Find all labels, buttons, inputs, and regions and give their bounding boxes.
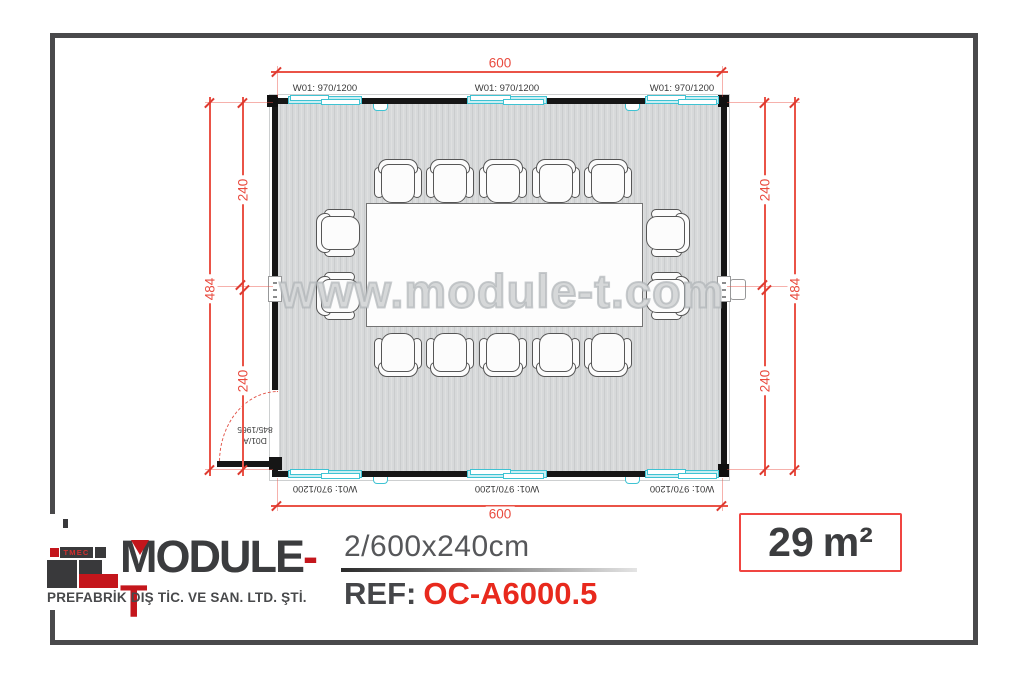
- door-size: 845/1965: [224, 424, 286, 435]
- window-label: W01: 970/1200: [622, 83, 742, 94]
- dim-left-half-top: 240: [236, 176, 251, 205]
- reference-line: REF:OC-A6000.5: [344, 576, 597, 612]
- company-logo: TMEC MODULE-T PREFABRİK DIŞ TİC. VE SAN.…: [42, 514, 338, 610]
- dim-width-top: 600: [486, 56, 515, 71]
- window-pane: [321, 99, 359, 105]
- module-joint-plate: [730, 279, 746, 300]
- brand-m-triangle: [131, 540, 149, 555]
- window-top-2: [467, 96, 547, 104]
- brand-name: MODULE-T: [120, 534, 338, 624]
- company-subtitle: PREFABRİK DIŞ TİC. VE SAN. LTD. ŞTİ.: [47, 590, 307, 605]
- window-pane: [503, 99, 544, 105]
- logo-block-red: [50, 548, 59, 557]
- logo-tick: [63, 519, 68, 528]
- dim-line-top: [271, 71, 728, 73]
- divider-rule: [341, 568, 637, 572]
- window-bottom-3: [645, 470, 719, 478]
- window-top-3: [645, 96, 719, 104]
- window-label: W01: 970/1200: [447, 483, 567, 494]
- area-unit: m²: [823, 519, 873, 566]
- extension-line: [205, 469, 273, 470]
- window-label: W01: 970/1200: [265, 483, 385, 494]
- window-top-1: [288, 96, 362, 104]
- window-label: W01: 970/1200: [447, 83, 567, 94]
- chair: [316, 210, 362, 256]
- area-badge: 29 m²: [739, 513, 902, 572]
- door-code: D01/A: [224, 435, 286, 446]
- window-label: W01: 970/1200: [622, 483, 742, 494]
- corner-post: [718, 464, 729, 477]
- dim-left-total: 484: [203, 275, 218, 304]
- chair: [585, 159, 631, 205]
- chair: [533, 159, 579, 205]
- watermark: www.module-t.com: [279, 264, 724, 319]
- window-bottom-1: [288, 470, 362, 478]
- chair: [480, 159, 526, 205]
- module-size-label: 2/600x240cm: [344, 530, 530, 564]
- chair: [533, 331, 579, 377]
- corner-post: [718, 95, 729, 107]
- window-pane: [678, 473, 716, 479]
- window-pane: [503, 473, 544, 479]
- logo-block-dark: [95, 547, 106, 558]
- logo-block-dark: [47, 560, 77, 588]
- dim-right-half-bottom: 240: [758, 367, 773, 396]
- area-value: 29: [768, 519, 814, 566]
- ref-label: REF:: [344, 576, 416, 611]
- dim-width-bottom: 600: [486, 507, 515, 522]
- logo-tmec-label: TMEC: [60, 547, 93, 558]
- window-pane: [678, 99, 716, 105]
- chair: [480, 331, 526, 377]
- dim-right-half-top: 240: [758, 176, 773, 205]
- wall-clip: [625, 104, 640, 111]
- chair: [427, 331, 473, 377]
- extension-line: [205, 102, 273, 103]
- door-label: D01/A 845/1965: [224, 424, 286, 446]
- dim-left-half-bottom: 240: [236, 367, 251, 396]
- logo-block-red: [79, 574, 118, 588]
- chair: [375, 159, 421, 205]
- window-pane: [321, 473, 359, 479]
- chair: [644, 210, 690, 256]
- window-label: W01: 970/1200: [265, 83, 385, 94]
- brand-main: MODULE: [120, 531, 303, 582]
- ref-value: OC-A6000.5: [423, 576, 597, 611]
- chair: [375, 331, 421, 377]
- window-bottom-2: [467, 470, 547, 478]
- chair: [427, 159, 473, 205]
- wall-clip: [373, 104, 388, 111]
- chair: [585, 331, 631, 377]
- dim-right-total: 484: [788, 275, 803, 304]
